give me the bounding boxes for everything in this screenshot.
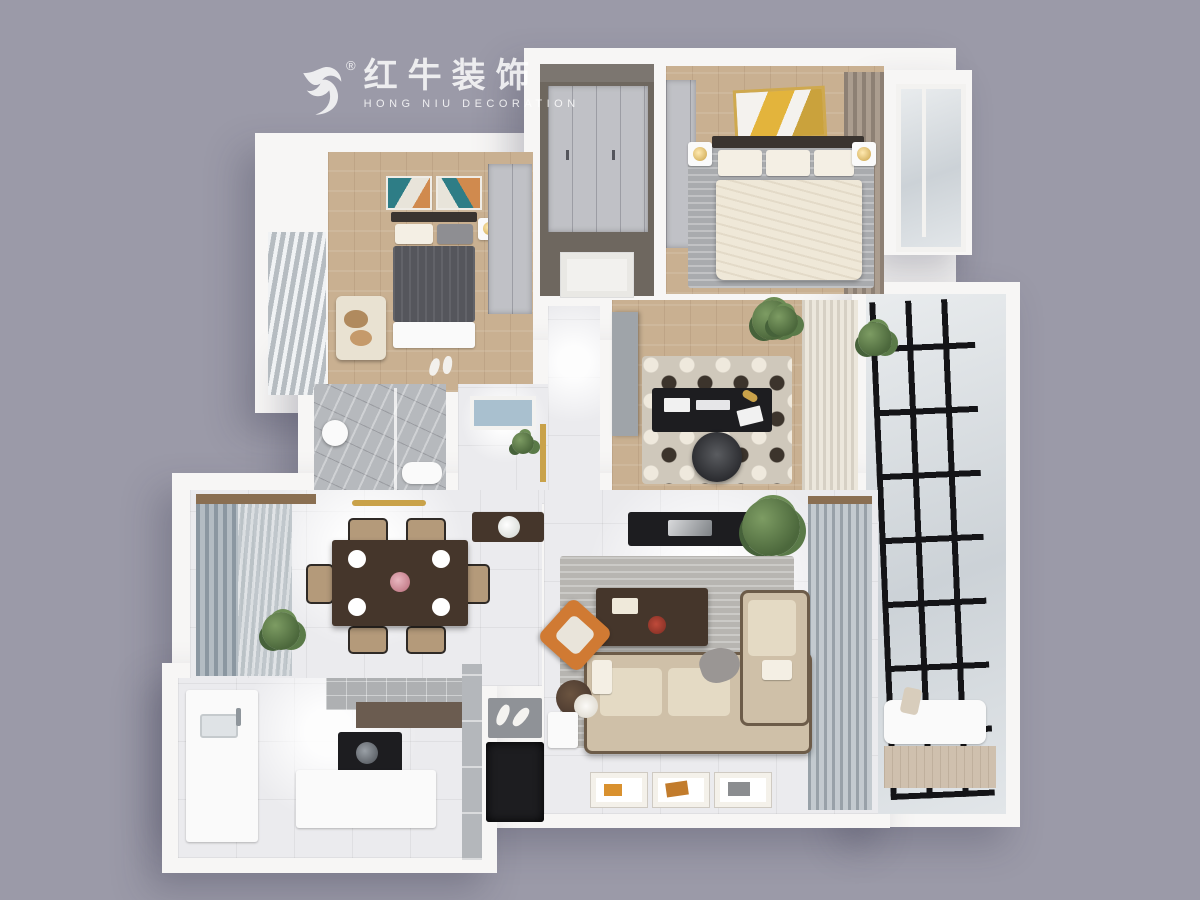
laundry-cabinet bbox=[884, 746, 996, 788]
dining-plate-4 bbox=[432, 598, 450, 616]
balcony-plant-top bbox=[858, 322, 892, 356]
hallway-floor bbox=[548, 306, 600, 494]
dining-chair-left bbox=[306, 564, 334, 604]
registered-mark: ® bbox=[346, 58, 356, 73]
brand-name-english: HONG NIU DECORATION bbox=[364, 98, 580, 110]
bedroom2-pillow-gray bbox=[437, 224, 473, 244]
dining-centerpiece-flowers bbox=[390, 572, 410, 592]
hall-skylight-light bbox=[470, 396, 536, 430]
master-headboard bbox=[712, 136, 864, 148]
desk-keyboard bbox=[696, 400, 730, 410]
balcony-tub bbox=[884, 700, 986, 744]
dining-chair-bottom-left bbox=[348, 626, 388, 654]
floor-art-3 bbox=[728, 782, 750, 796]
television bbox=[668, 520, 712, 536]
study-office-chair bbox=[692, 432, 742, 482]
cooktop-pot bbox=[356, 742, 378, 764]
floor-art-1 bbox=[604, 784, 622, 796]
desk-paper bbox=[664, 398, 690, 412]
dining-pendant-bar bbox=[352, 500, 426, 506]
bedroom2-foot-bench bbox=[393, 322, 475, 348]
study-door-panel bbox=[612, 312, 638, 436]
bedroom2-lounge-chair bbox=[336, 296, 386, 360]
brand-name-chinese: 红牛装饰 bbox=[364, 56, 580, 96]
living-curtain-pelmet bbox=[808, 496, 872, 504]
closet-handle2 bbox=[612, 150, 615, 160]
sofa-chaise-cushion bbox=[748, 600, 796, 656]
coffee-table-tray bbox=[612, 598, 638, 614]
floorplan-3d-render: ® 红牛装饰 HONG NIU DECORATION bbox=[0, 0, 1200, 900]
master-bay-window bbox=[896, 84, 966, 252]
master-pillow-left bbox=[718, 150, 762, 176]
bedroom2-artwork-left bbox=[386, 176, 432, 210]
vanity-plant bbox=[512, 432, 534, 454]
dining-plate-2 bbox=[432, 550, 450, 568]
bedroom2-balcony-blinds bbox=[268, 232, 326, 395]
kitchen-dark-counter bbox=[356, 702, 474, 728]
closet-door-panel bbox=[560, 252, 634, 298]
dining-plate-3 bbox=[348, 598, 366, 616]
master-pillow-mid bbox=[766, 150, 810, 176]
closet-handle bbox=[566, 150, 569, 160]
entry-side-table-books bbox=[548, 712, 578, 748]
shower-glass-partition bbox=[394, 388, 397, 496]
master-duvet bbox=[716, 180, 862, 280]
sofa-pillow-right bbox=[762, 660, 792, 680]
bedroom2-duvet bbox=[393, 246, 475, 322]
sofa-pillow-left bbox=[592, 660, 612, 694]
gold-mirror bbox=[540, 424, 546, 482]
dining-plate-1 bbox=[348, 550, 366, 568]
master-pillow-right bbox=[814, 150, 854, 176]
bay-window-mullion bbox=[922, 89, 926, 237]
bathroom-basin bbox=[402, 462, 442, 484]
boundary-fern bbox=[768, 306, 798, 336]
kitchen-sliding-door-frame bbox=[462, 664, 482, 860]
bull-logo-icon bbox=[298, 64, 350, 122]
bedroom2-headboard bbox=[391, 212, 477, 222]
dining-plant bbox=[262, 612, 300, 650]
dining-window-pelmet bbox=[196, 494, 316, 504]
bedroom2-pillow bbox=[395, 224, 433, 244]
kitchen-counter-left bbox=[186, 690, 258, 842]
entry-door-dark bbox=[486, 742, 544, 822]
bathroom-toilet bbox=[322, 420, 348, 446]
dining-sheer bbox=[238, 504, 292, 676]
kitchen-island bbox=[296, 770, 436, 828]
living-curtains bbox=[808, 496, 872, 810]
master-lamp-right bbox=[857, 147, 871, 161]
bedroom2-chair-pillow bbox=[344, 310, 368, 328]
fruit-bowl bbox=[648, 616, 666, 634]
study-sheer-curtains bbox=[802, 300, 858, 506]
living-palm-plant bbox=[742, 498, 800, 556]
kitchen-sink bbox=[200, 714, 238, 738]
kitchen-faucet bbox=[236, 708, 241, 726]
bedroom2-chair-pillow2 bbox=[350, 330, 372, 346]
console-flowers bbox=[498, 516, 520, 538]
dining-chair-bottom-right bbox=[406, 626, 446, 654]
master-artwork bbox=[733, 86, 828, 143]
bedroom2-artwork-right bbox=[436, 176, 482, 210]
brand-watermark: ® 红牛装饰 HONG NIU DECORATION bbox=[298, 56, 580, 122]
bedroom2-wardrobe bbox=[488, 164, 532, 314]
master-lamp-left bbox=[693, 147, 707, 161]
